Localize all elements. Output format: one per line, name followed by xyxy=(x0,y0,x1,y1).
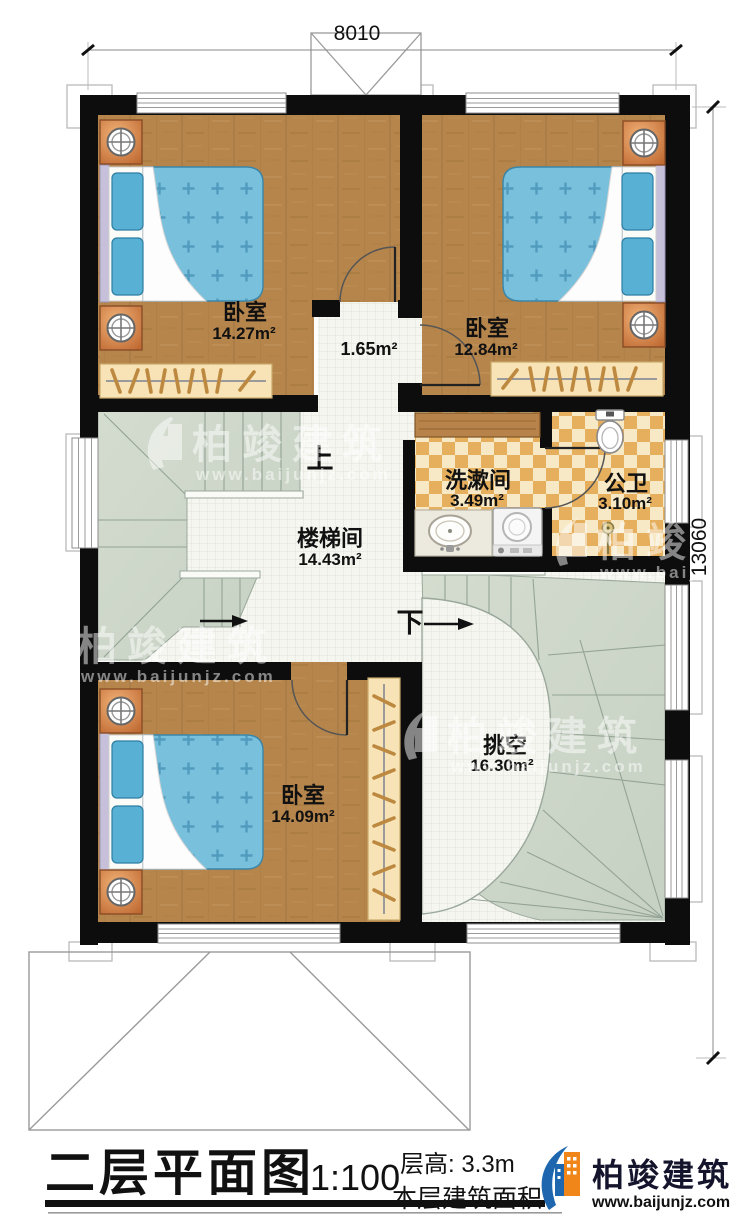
nightstand xyxy=(100,120,142,164)
room-label: 卧室 xyxy=(465,316,509,341)
page-title: 二层平面图 xyxy=(45,1145,315,1201)
watermark-text: 柏竣建筑 xyxy=(77,625,277,669)
window xyxy=(137,93,286,113)
pillow xyxy=(112,806,143,863)
window xyxy=(72,438,98,548)
dimension-value: 8010 xyxy=(334,22,381,45)
nightstand xyxy=(623,303,665,347)
washroom-counter xyxy=(415,413,540,437)
wardrobe-bottom-vertical xyxy=(368,678,400,920)
watermark-text: 柏竣建筑 xyxy=(447,715,647,759)
floor-area-label: 本层建筑面积 xyxy=(392,1185,542,1213)
bed-top-left xyxy=(100,165,263,302)
watermark-logo-icon xyxy=(34,620,67,670)
room-area: 3.49m² xyxy=(450,491,504,510)
corridor-area: 1.65m² xyxy=(340,339,397,359)
window xyxy=(158,924,340,943)
watermark-text: 柏竣建筑 xyxy=(192,423,392,467)
pillow xyxy=(112,741,143,798)
nightstand xyxy=(100,870,142,914)
room-area: 3.10m² xyxy=(598,494,652,513)
watermark-url: www.baijunjz.com xyxy=(599,563,750,582)
wardrobe-top-right xyxy=(491,362,663,396)
pillow xyxy=(622,238,653,295)
room-label: 卧室 xyxy=(223,300,267,325)
room-area: 14.43m² xyxy=(298,550,362,569)
nightstand xyxy=(100,306,142,350)
drawing-scale: 1:100 xyxy=(310,1157,400,1198)
pillow xyxy=(112,173,143,230)
floorplan-drawing: 上 下 卧室 14.27m² 卧室 12.84m² 卧室 14.09m² 楼梯间… xyxy=(0,0,750,1217)
watermark: 柏竣建筑 www.baijunjz.com xyxy=(34,620,277,686)
window xyxy=(466,93,619,113)
down-label: 下 xyxy=(397,608,424,638)
window xyxy=(467,924,620,943)
watermark-url: www.baijunjz.com xyxy=(450,757,646,776)
dimension-value: 13060 xyxy=(688,518,711,576)
window xyxy=(665,585,688,710)
title-block: 二层平面图 1:100 层高: 3.3m 本层建筑面积 柏竣建筑 www.bai… xyxy=(45,1145,732,1214)
wardrobe-top-left xyxy=(100,364,272,398)
doorway-floor2 xyxy=(400,318,422,385)
brand-url: www.baijunjz.com xyxy=(591,1194,730,1211)
window xyxy=(665,760,688,898)
floor-height: 层高: 3.3m xyxy=(400,1151,515,1178)
bed-top-right xyxy=(503,165,665,302)
sink xyxy=(415,510,492,556)
lower-roof-outline xyxy=(29,952,470,1130)
room-label: 卧室 xyxy=(281,783,325,808)
bed-bottom xyxy=(100,733,263,870)
toilet xyxy=(596,410,624,453)
room-area: 14.09m² xyxy=(271,807,335,826)
window xyxy=(665,440,688,523)
washing-machine xyxy=(493,508,542,556)
bath-doorway-floor xyxy=(540,448,554,508)
room-label: 洗漱间 xyxy=(445,468,511,493)
room-area: 12.84m² xyxy=(454,340,518,359)
nightstand xyxy=(100,689,142,733)
watermark-text: 柏竣建筑 xyxy=(596,521,750,565)
room-label: 楼梯间 xyxy=(297,526,363,551)
pillow xyxy=(112,238,143,295)
nightstand xyxy=(623,121,665,165)
watermark-url: www.baijunjz.com xyxy=(195,465,391,484)
room-label: 公卫 xyxy=(604,471,648,496)
pillow xyxy=(622,173,653,230)
brand-name: 柏竣建筑 xyxy=(592,1157,732,1193)
floorplan-page: 上 下 卧室 14.27m² 卧室 12.84m² 卧室 14.09m² 楼梯间… xyxy=(0,0,750,1217)
doorway-floor3 xyxy=(291,662,347,680)
room-area: 14.27m² xyxy=(212,324,276,343)
brand-logo-icon xyxy=(542,1146,580,1210)
watermark-url: www.baijunjz.com xyxy=(80,667,276,686)
